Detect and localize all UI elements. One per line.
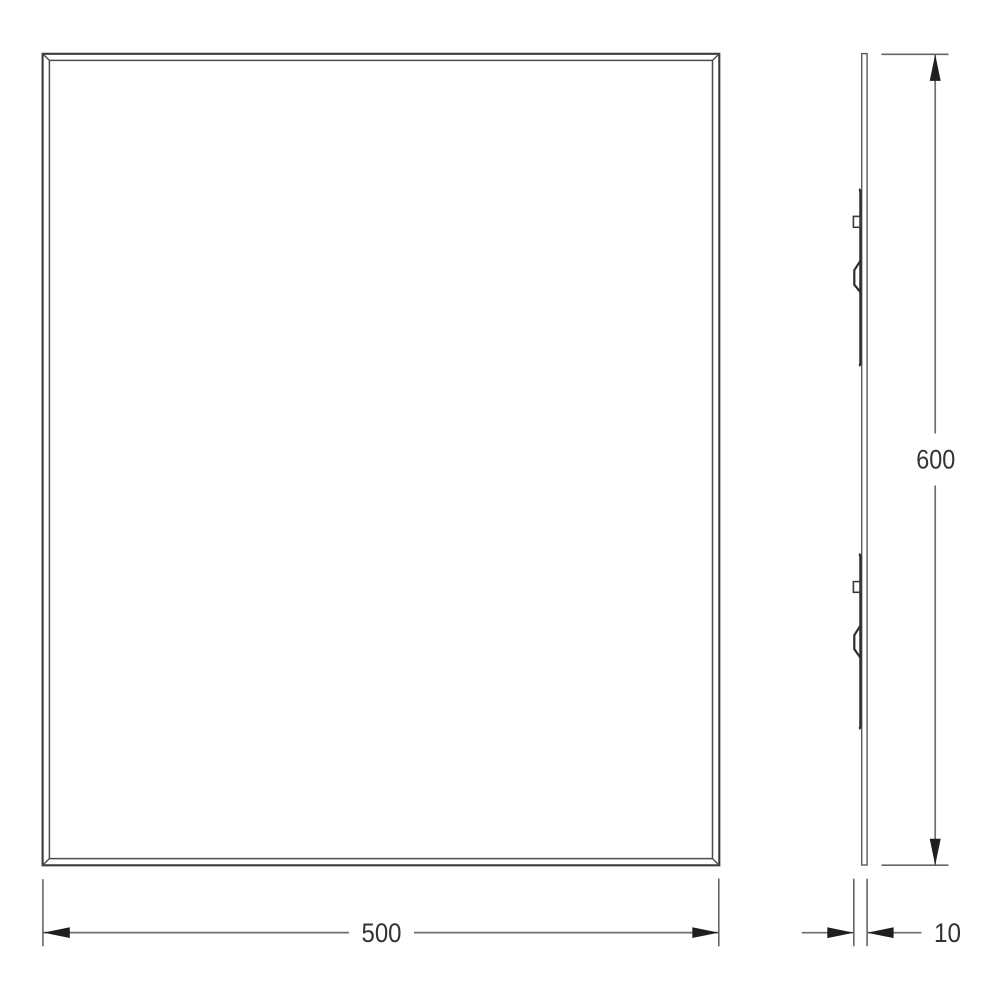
- svg-text:500: 500: [362, 918, 402, 948]
- svg-text:600: 600: [916, 445, 955, 475]
- svg-text:10: 10: [934, 918, 961, 948]
